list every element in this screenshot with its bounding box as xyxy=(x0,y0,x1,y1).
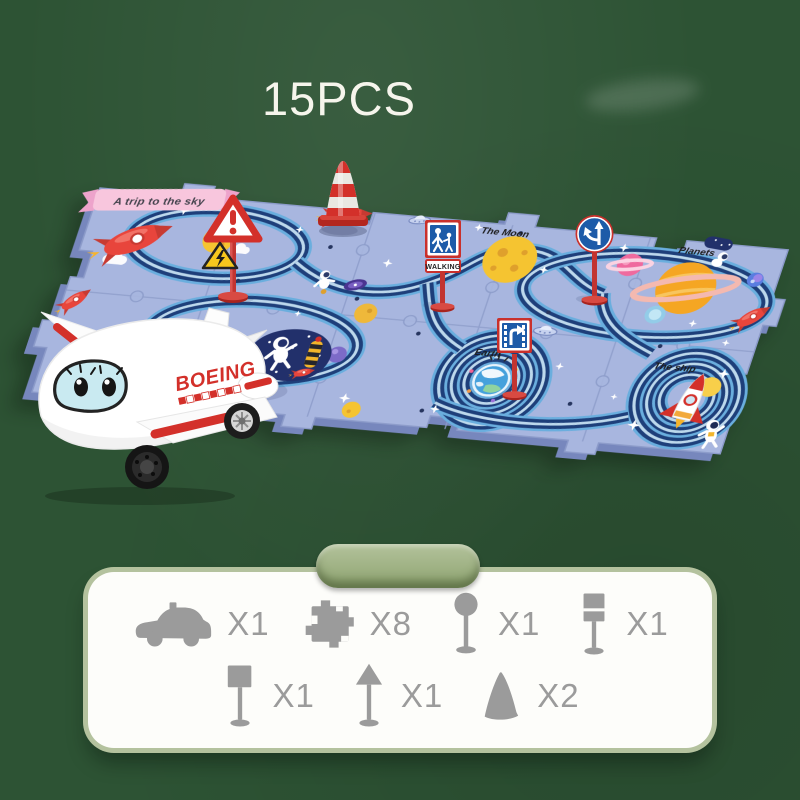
square-sign-icon xyxy=(220,662,260,730)
puzzle-piece-icon xyxy=(304,597,358,651)
part-item-cone: X2 xyxy=(477,669,579,723)
part-count: X1 xyxy=(272,677,314,715)
walking-sign: WALKING xyxy=(423,220,463,314)
panel-tab xyxy=(316,544,480,588)
toy-plane: BOEING xyxy=(25,300,285,505)
part-item-vehicle: X1 xyxy=(131,598,269,650)
walking-sign-label: WALKING xyxy=(425,264,460,271)
arrow-sign-icon xyxy=(349,662,389,730)
plane-rear-wheel xyxy=(224,403,260,439)
direction-sign xyxy=(574,214,616,306)
part-item-puzzle-piece: X8 xyxy=(304,597,412,651)
car-icon xyxy=(131,598,215,650)
plane-face xyxy=(55,361,127,411)
round-sign-icon xyxy=(446,591,486,657)
part-item-slot-sign: X1 xyxy=(574,590,668,658)
parts-row-2: X1 X1 X2 xyxy=(88,662,712,730)
part-count: X1 xyxy=(401,677,443,715)
part-item-arrow-sign: X1 xyxy=(349,662,443,730)
part-count: X1 xyxy=(626,605,668,643)
part-count: X2 xyxy=(537,677,579,715)
turn-right-sign xyxy=(496,318,536,402)
parts-row-1: X1 X8 X1 xyxy=(88,590,712,658)
background-smudge xyxy=(584,73,702,117)
traffic-cone xyxy=(314,158,372,240)
plane-front-wheel xyxy=(125,445,169,489)
part-item-round-sign: X1 xyxy=(446,591,540,657)
part-count: X1 xyxy=(227,605,269,643)
mat-banner-label: A trip to the sky xyxy=(111,196,206,207)
part-count: X8 xyxy=(370,605,412,643)
piece-count-label: 15PCS xyxy=(262,71,416,126)
part-item-square-sign: X1 xyxy=(220,662,314,730)
slot-sign-icon xyxy=(574,590,614,658)
parts-list-panel: X1 X8 X1 xyxy=(88,572,712,748)
warning-sign xyxy=(200,193,270,311)
cone-icon xyxy=(477,669,525,723)
part-count: X1 xyxy=(498,605,540,643)
